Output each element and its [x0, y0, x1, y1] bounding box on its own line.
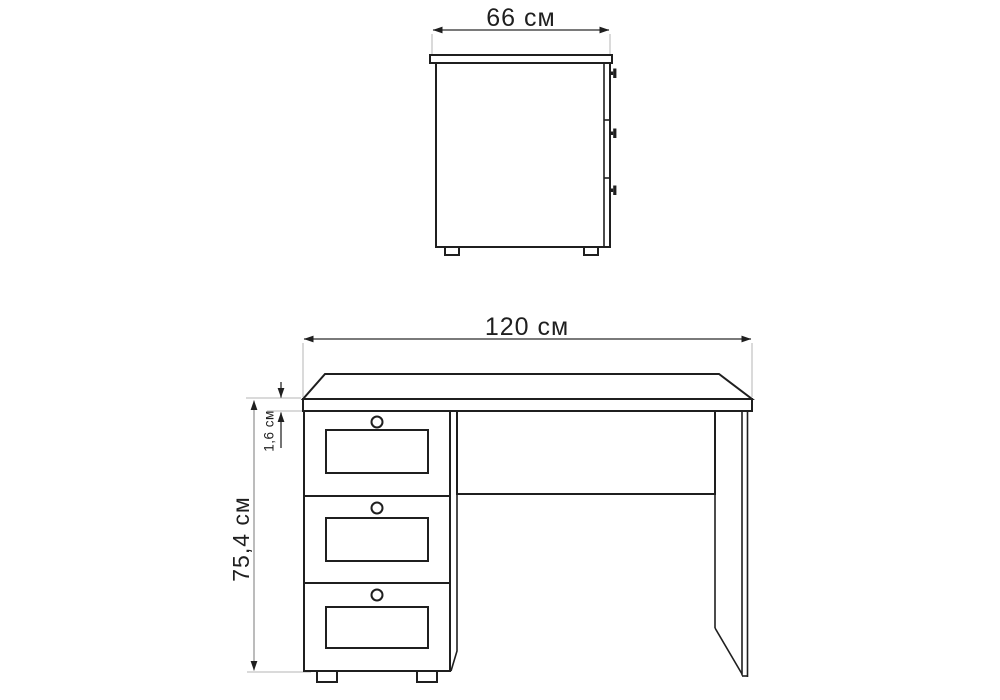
- drawer-knob: [372, 590, 383, 601]
- drawer-knob: [372, 503, 383, 514]
- front-view-foot: [317, 671, 337, 682]
- front-view-foot: [417, 671, 437, 682]
- desk-drawing-svg: 66 см 120 см: [0, 0, 1000, 700]
- tabletop-thickness-label: 1,6 см: [262, 410, 277, 452]
- front-height-label: 75,4 см: [228, 496, 254, 581]
- drawer-panel: [326, 430, 428, 473]
- front-view: 120 см 75,4 см 1,6 см: [228, 313, 752, 682]
- tabletop-front-edge: [303, 399, 752, 411]
- drawer-knob: [372, 417, 383, 428]
- drawer-panel: [326, 518, 428, 561]
- side-view: 66 см: [430, 4, 616, 255]
- side-view-body: [436, 63, 610, 247]
- drawer-panel: [326, 607, 428, 648]
- back-panel: [457, 411, 715, 494]
- right-leg: [715, 411, 748, 677]
- tabletop-surface: [303, 374, 752, 399]
- front-width-label: 120 см: [485, 313, 569, 341]
- side-view-foot: [445, 247, 459, 255]
- drawer-unit: [304, 411, 457, 682]
- side-view-tabletop: [430, 55, 612, 63]
- side-view-width-label: 66 см: [486, 4, 555, 32]
- side-view-width-dimension: 66 см: [432, 4, 610, 55]
- technical-drawing-page: 66 см 120 см: [0, 0, 1000, 700]
- side-view-foot: [584, 247, 598, 255]
- tabletop-thickness-dimension: 1,6 см: [262, 382, 303, 452]
